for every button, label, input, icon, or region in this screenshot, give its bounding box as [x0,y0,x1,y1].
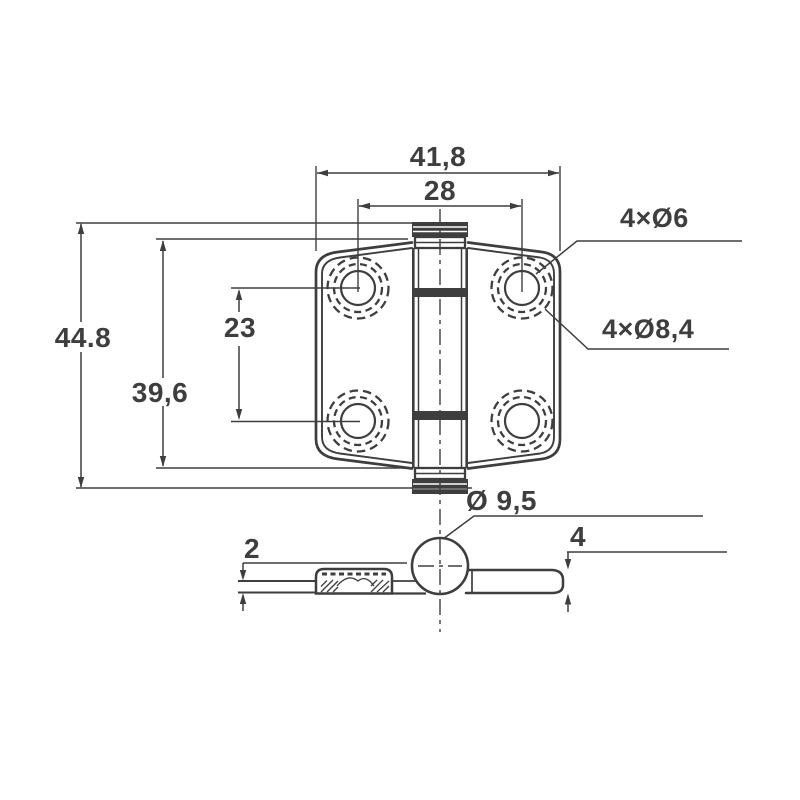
drawing-canvas: 41,8 28 44.8 39 [0,0,800,800]
dim-label-41-8: 41,8 [410,141,467,172]
section-view: Ø 9,5 2 4 [238,485,727,612]
callout-small-holes: 4×Ø6 [536,203,742,274]
right-leaf-outline [468,243,560,469]
plan-view: 41,8 28 44.8 39 [55,141,742,494]
hinge-technical-drawing: 41,8 28 44.8 39 [0,0,800,800]
dimension-overall-height: 44.8 [55,223,472,488]
dim-label-4: 4 [570,521,586,552]
dim-label-23: 23 [224,312,256,343]
callout-label-4xd6: 4×Ø6 [620,203,689,233]
dim-label-44-8: 44.8 [55,322,112,353]
dimension-hole-spacing-v: 23 [224,288,360,422]
dimension-right-thickness: 4 [565,521,727,612]
callout-large-holes: 4×Ø8,4 [545,309,729,349]
dim-label-39-6: 39,6 [132,377,189,408]
callout-label-4xd84: 4×Ø8,4 [602,314,694,344]
dim-label-2: 2 [244,533,260,564]
right-leaf-section [466,570,563,593]
hole-bottom-right [492,391,553,452]
dim-label-28: 28 [424,175,456,206]
callout-label-d95: Ø 9,5 [466,485,537,516]
formed-leaf-section [316,569,392,594]
